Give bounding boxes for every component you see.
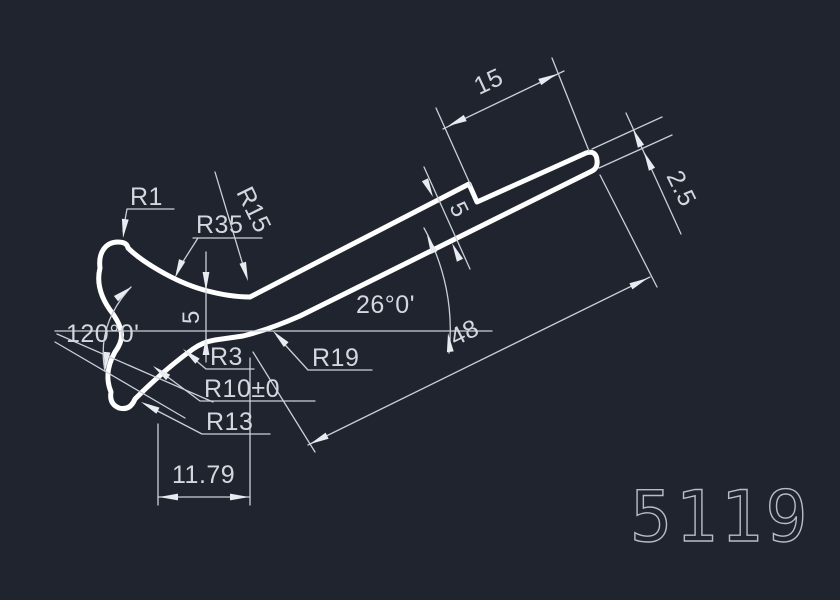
r35-arrowhead	[175, 259, 185, 278]
r13-arrowhead	[141, 402, 160, 414]
dim-label-shaft-angle: 26°0'	[356, 291, 415, 319]
shaft-thickness-arrowhead-top	[422, 178, 433, 197]
r19-arrowhead	[273, 331, 289, 347]
end-thickness-arrowhead-top	[633, 129, 644, 148]
dim-label-r35: R35	[196, 211, 243, 239]
dim-label-base-width: 11.79	[172, 461, 235, 489]
shaft-length-arrowhead-left	[310, 433, 329, 444]
r15-arrowhead	[240, 262, 249, 281]
part-number: 5119	[630, 476, 811, 558]
shaft-thickness-arrowhead-bottom	[452, 243, 463, 262]
dim-label-neck-thickness: 5	[178, 310, 205, 324]
cad-drawing: R1 R35 R15 120°0' 5 R3 R10±0 R13 11.79 2…	[0, 0, 840, 600]
end-length-arrowhead-right	[538, 74, 557, 85]
dim-label-r1: R1	[130, 183, 163, 211]
dim-label-end-length: 15	[470, 63, 508, 101]
r1-leader-line	[123, 209, 174, 231]
end-thickness-arrowhead-bottom	[644, 152, 655, 171]
dim-label-shaft-thickness: 5	[444, 198, 474, 222]
r1-arrowhead	[122, 219, 129, 238]
dim-label-r19: R19	[312, 344, 359, 372]
end-length-arrowhead-left	[448, 115, 467, 126]
shaft-length-arrowhead-right	[629, 278, 648, 289]
dim-label-r13: R13	[206, 408, 253, 436]
r35-leader-line	[177, 238, 262, 271]
dim-label-r10: R10±0	[204, 375, 280, 403]
head-angle-arrowhead-top	[114, 287, 131, 301]
dim-label-head-angle: 120°0'	[66, 320, 139, 348]
dim-label-r3: R3	[210, 343, 243, 371]
cad-drawing-canvas[interactable]: R1 R35 R15 120°0' 5 R3 R10±0 R13 11.79 2…	[0, 0, 840, 600]
base-width-arrowhead-left	[159, 494, 178, 501]
base-width-arrowhead-right	[230, 494, 249, 501]
